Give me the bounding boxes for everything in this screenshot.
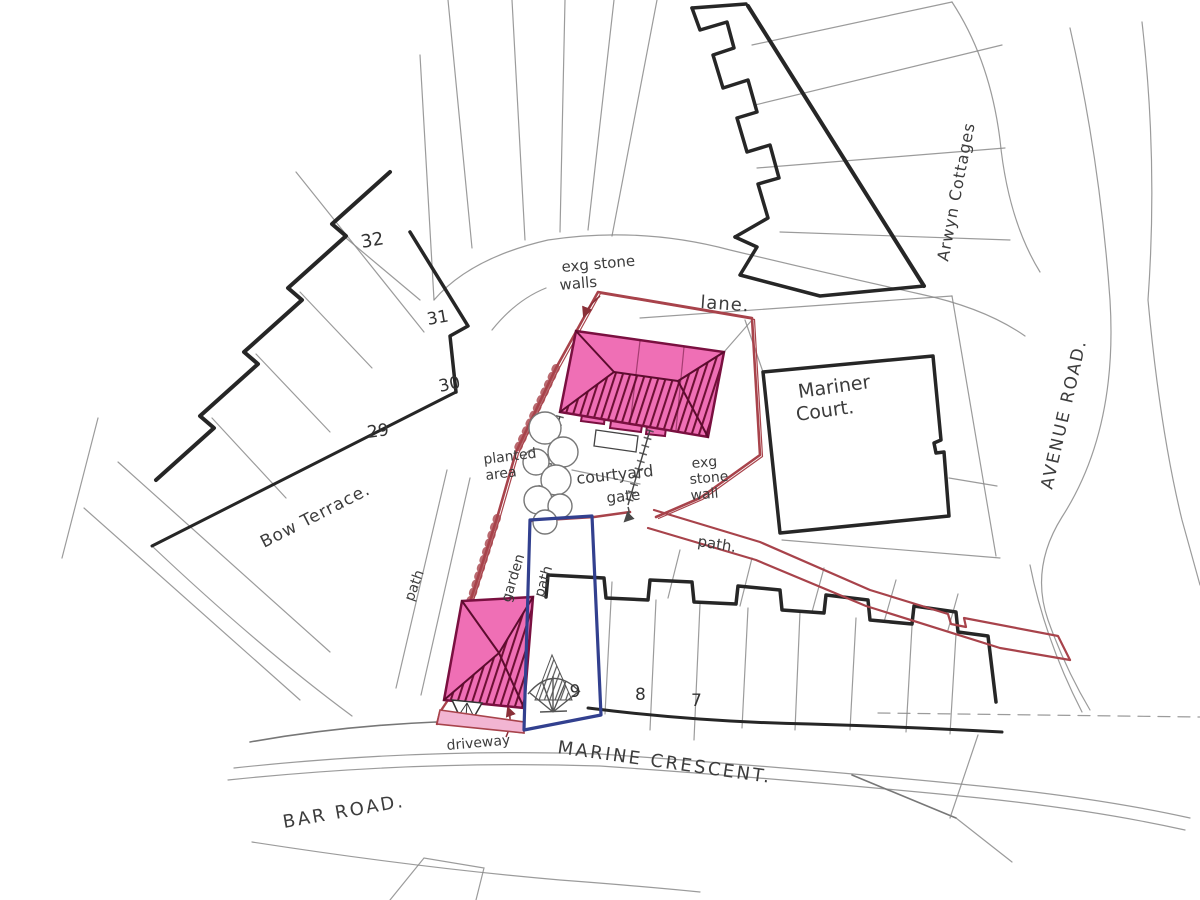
planted-area-trees bbox=[523, 412, 578, 534]
house-number-7: 7 bbox=[691, 691, 702, 711]
house-number-9: 9 bbox=[569, 681, 581, 702]
site-plan-svg: exg stone walls lane. Arwyn Cottages AVE… bbox=[0, 0, 1200, 900]
path-west-label: path bbox=[402, 568, 428, 603]
marine-crescent-terrace bbox=[546, 575, 1002, 732]
labels-layer: exg stone walls lane. Arwyn Cottages AVE… bbox=[257, 121, 1091, 833]
planted-area-label-line2: area bbox=[485, 464, 518, 484]
marine-crescent-label: MARINE CRESCENT. bbox=[556, 737, 773, 788]
arwyn-cottages-building bbox=[692, 4, 924, 296]
site-boundary-red bbox=[437, 292, 1070, 737]
exg-stone-walls-label-line1: exg stone bbox=[561, 252, 636, 276]
house-number-32: 32 bbox=[359, 228, 385, 253]
bow-terrace-building bbox=[152, 172, 468, 546]
house-number-31: 31 bbox=[425, 306, 450, 329]
exg-stone-wall-label-line3: wall bbox=[690, 486, 719, 504]
site-plan-drawing: exg stone walls lane. Arwyn Cottages AVE… bbox=[0, 0, 1200, 900]
lane-label: lane. bbox=[700, 292, 751, 316]
blue-plot bbox=[524, 516, 601, 730]
bow-terrace-label: Bow Terrace. bbox=[257, 480, 374, 553]
path-east-label: path. bbox=[696, 532, 737, 556]
avenue-road-label: AVENUE ROAD. bbox=[1037, 337, 1091, 491]
arwyn-cottages-label: Arwyn Cottages bbox=[933, 121, 979, 263]
exg-stone-walls-label-line2: walls bbox=[559, 273, 598, 294]
highlighted-main-building bbox=[560, 331, 724, 437]
house-number-30: 30 bbox=[437, 373, 462, 397]
courtyard-label: courtyard bbox=[575, 461, 654, 488]
driveway-label: driveway bbox=[446, 732, 511, 753]
exg-stone-wall-label-line2: stone bbox=[689, 469, 729, 488]
bar-road-label: BAR ROAD. bbox=[281, 791, 406, 833]
gate-label: gate bbox=[606, 486, 642, 507]
house-number-29: 29 bbox=[366, 420, 390, 443]
house-number-8: 8 bbox=[635, 685, 646, 705]
path-garden-label: path bbox=[532, 564, 557, 599]
driveway-strip bbox=[437, 710, 524, 733]
highlighted-lower-building bbox=[437, 597, 533, 733]
